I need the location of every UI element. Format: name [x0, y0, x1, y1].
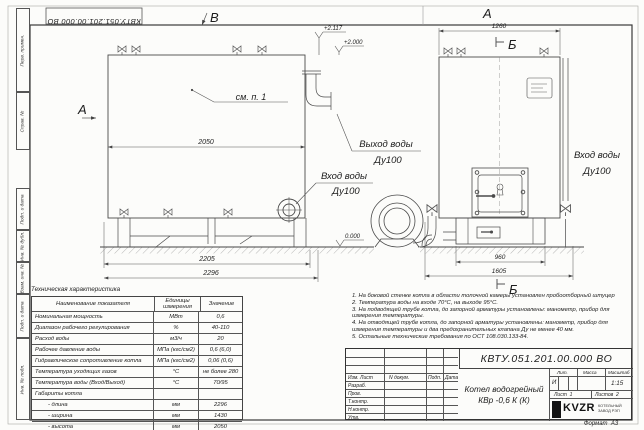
view-label-a-side: А	[77, 102, 87, 117]
table-row: Температура уходящих газов°Сне более 280	[32, 366, 242, 377]
tech-table-title: Техническая характеристика	[31, 286, 120, 293]
level-top: +2.117	[324, 26, 343, 32]
svg-text:1260: 1260	[492, 23, 507, 30]
sheet-no: Лист 1	[554, 392, 572, 398]
chg-col-data: Дата	[445, 375, 458, 381]
front-view	[422, 57, 568, 247]
view-label-a-front: А	[482, 6, 492, 21]
level-zero: 0.000	[345, 234, 361, 240]
svg-text:Ду100: Ду100	[582, 166, 611, 177]
table-row: Рабочее давление водыМПа (кгс/см2)0,6 (6…	[32, 344, 242, 355]
svg-text:1605: 1605	[492, 268, 507, 275]
row-nkontr: Н.контр.	[348, 407, 369, 413]
section-mark-b-top	[496, 37, 504, 47]
dim-body-length: 2050	[108, 139, 305, 147]
level-marks	[315, 32, 364, 246]
table-row: Диапазон рабочего регулирования%40-110	[32, 322, 242, 333]
title-block: Изм. Лист N докум. Подп. Дата Разраб. Пр…	[345, 348, 632, 420]
section-mark-b-bottom	[497, 279, 505, 289]
technical-notes: 1. На боковой стенке котла в области топ…	[352, 293, 632, 341]
callout-see-note-1: см. п. 1	[191, 89, 288, 102]
view-label-v: В	[210, 10, 219, 25]
mass-label: Масса	[583, 370, 597, 375]
svg-text:Вход воды: Вход воды	[574, 150, 620, 161]
stamp-inv-dubl: Инв. № дубл.	[16, 230, 30, 262]
vent-valve-icons	[118, 46, 266, 218]
drawing-sheet: КВТУ.051.201.00.000 ВО 2050 +2.117 +2.00…	[0, 0, 644, 430]
svg-text:Ду100: Ду100	[331, 186, 360, 197]
table-row: Температура воды (Вход/Выход)°С70/95	[32, 377, 242, 388]
table-row: Номинальная мощностьМВт0,6	[32, 311, 242, 322]
table-row: - высотамм2050	[32, 421, 242, 430]
chg-col-docum: N докум.	[389, 375, 409, 381]
svg-text:см. п. 1: см. п. 1	[236, 92, 267, 102]
svg-text:Вход воды: Вход воды	[321, 171, 367, 182]
inlet-right-label: Вход воды Ду100	[574, 150, 620, 177]
side-view	[108, 55, 331, 247]
svg-text:Ду100: Ду100	[373, 155, 402, 166]
table-row: Расход водым3/ч20	[32, 333, 242, 344]
tech-table-rows: Номинальная мощностьМВт0,6Диапазон рабоч…	[32, 311, 242, 430]
outlet-label: Выход воды Ду100	[337, 114, 421, 166]
stamp-perv-primen: Перв. примен.	[16, 8, 30, 92]
scale-label: Масштаб	[608, 370, 629, 375]
view-label-b-top: Б	[508, 37, 517, 52]
svg-text:2050: 2050	[197, 139, 214, 146]
ground-hatching	[100, 247, 584, 254]
chg-col-izm: Изм. Лист	[348, 375, 373, 381]
duct-valve-icon	[427, 205, 437, 216]
stamp-inv-podl: Инв. № подл.	[16, 338, 30, 420]
row-prov: Пров.	[348, 391, 361, 397]
kvzr-logo-text: KVZR	[563, 402, 595, 414]
stamp-podp-data-1: Подп. и дата	[16, 188, 30, 230]
scale-value: 1:15	[611, 380, 623, 387]
note-line: 1. На боковой стенке котла в области топ…	[352, 293, 632, 300]
table-row: Гидравлическое сопротивление котлаМПа (к…	[32, 355, 242, 366]
row-razrab: Разраб.	[348, 383, 366, 389]
svg-text:2205: 2205	[198, 256, 215, 263]
doc-number: КВТУ.051.201.00.000 ВО	[459, 349, 633, 369]
tech-table: Наименование показателя Единицы измерени…	[31, 296, 243, 420]
view-arrow-v	[202, 13, 207, 25]
table-row: - ширинамм1430	[32, 410, 242, 421]
row-tkontr: Т.контр.	[348, 399, 368, 405]
inlet-valve-icon	[561, 205, 571, 216]
rotated-doc-number: КВТУ.051.201.00.000 ВО	[47, 17, 140, 26]
col-header-name: Наименование показателя	[32, 297, 155, 311]
blower-fan	[371, 195, 456, 247]
table-row: - длинамм2296	[32, 399, 242, 410]
level-body: +2.000	[344, 40, 363, 46]
kvzr-logo-caption: КОТЕЛЬНЫЙ ЗАВОД РЭП	[598, 404, 622, 414]
note-line: 2. Температура воды на входе 70°С, на вы…	[352, 300, 632, 307]
col-header-value: Значение	[201, 297, 242, 311]
table-row: Габариты котла	[32, 388, 242, 399]
stamp-sprav-no: Справ. №	[16, 92, 30, 150]
svg-text:960: 960	[495, 254, 506, 261]
sheets-total: Листов 2	[595, 392, 619, 398]
note-line: 5. Остальные технические требования по О…	[352, 334, 632, 341]
lit-label: Лит.	[557, 370, 568, 375]
chg-col-podp: Подп.	[428, 375, 441, 381]
kvzr-logo-mark	[552, 401, 561, 418]
product-title: Котел водогрейный КВр -0,6 К (К)	[459, 369, 549, 421]
note-line: 3. На подводящей трубе котла, до запорно…	[352, 307, 632, 321]
lit-value: И	[552, 380, 556, 386]
col-header-units: Единицы измерения	[155, 297, 201, 311]
svg-text:Выход воды: Выход воды	[359, 139, 412, 150]
stamp-vzam-inv: Взам. инв. №	[16, 262, 30, 294]
inlet-left-label: Вход воды Ду100	[296, 171, 373, 204]
format-mark: Формат А3	[566, 421, 636, 427]
tech-table-header: Наименование показателя Единицы измерени…	[32, 297, 242, 311]
note-line: 4. На отводящей трубе котла, до запорной…	[352, 320, 632, 334]
svg-text:2296: 2296	[202, 270, 219, 277]
stamp-podp-data-2: Подп. и дата	[16, 294, 30, 338]
row-utv: Утв.	[348, 415, 359, 421]
